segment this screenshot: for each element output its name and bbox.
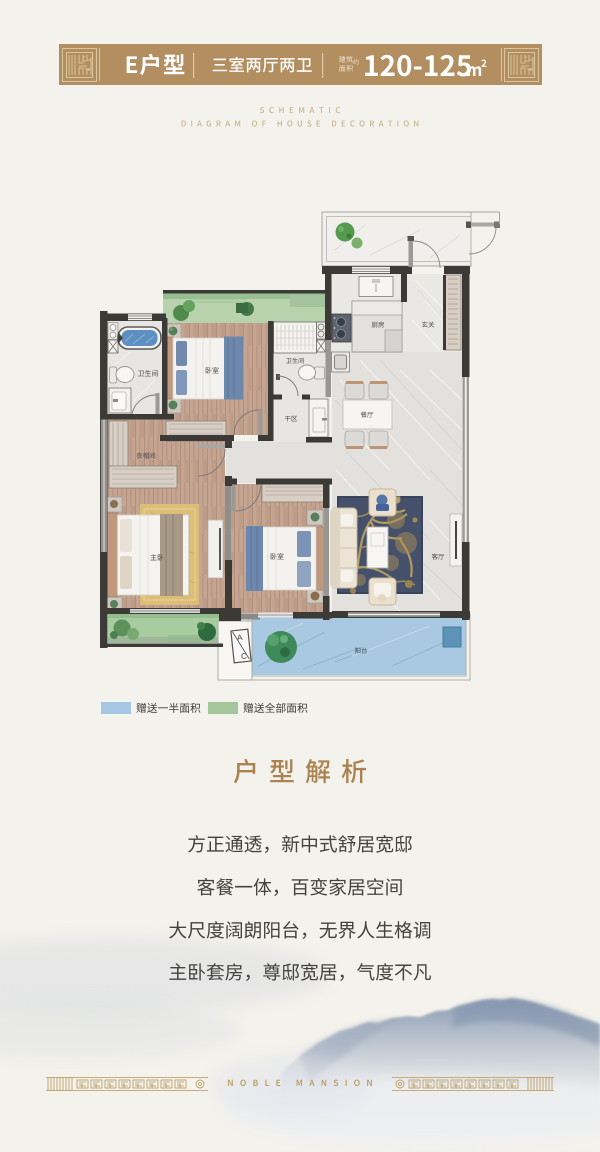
svg-text:C: C	[241, 651, 248, 661]
